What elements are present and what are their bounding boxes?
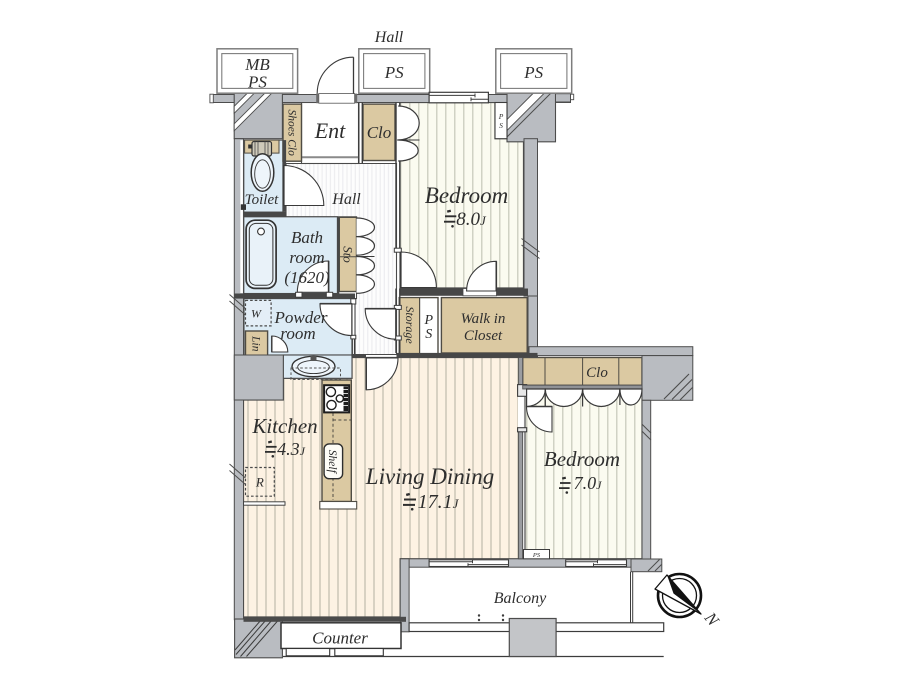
svg-text:8.0J: 8.0J — [456, 209, 487, 230]
svg-text:Living Dining: Living Dining — [365, 464, 494, 489]
svg-text:Shelf: Shelf — [326, 450, 338, 475]
svg-text:Closet: Closet — [464, 328, 503, 344]
svg-text:MB: MB — [244, 55, 270, 74]
svg-text:Bedroom: Bedroom — [425, 183, 508, 208]
svg-text:(1620): (1620) — [284, 268, 330, 287]
svg-text:S: S — [499, 121, 503, 130]
svg-text:W: W — [251, 307, 262, 321]
svg-text:room: room — [280, 324, 315, 343]
svg-text:Toilet: Toilet — [245, 192, 279, 208]
svg-text:N: N — [700, 608, 724, 631]
svg-text:Sto: Sto — [341, 246, 356, 263]
svg-text:P: P — [424, 313, 434, 328]
svg-text:Bath: Bath — [291, 228, 323, 247]
svg-text:PS: PS — [384, 63, 404, 82]
svg-text:room: room — [289, 248, 324, 267]
svg-text:PS: PS — [247, 73, 267, 92]
svg-text:Bedroom: Bedroom — [544, 447, 620, 471]
svg-text:Kitchen: Kitchen — [251, 414, 317, 438]
svg-text:Hall: Hall — [331, 191, 361, 208]
svg-text:P: P — [498, 112, 504, 121]
svg-text:Hall: Hall — [374, 29, 404, 46]
svg-text:Lin: Lin — [250, 335, 262, 352]
svg-text:Clo: Clo — [586, 365, 608, 381]
svg-text:PS: PS — [532, 552, 541, 559]
svg-text:PS: PS — [523, 63, 543, 82]
svg-text:R: R — [255, 475, 264, 490]
svg-text:Counter: Counter — [312, 629, 368, 648]
svg-text:Clo: Clo — [367, 123, 392, 142]
svg-text:Walk in: Walk in — [461, 311, 506, 327]
svg-text:Balcony: Balcony — [494, 590, 547, 607]
svg-text:Storage: Storage — [403, 306, 417, 344]
svg-text:Shoes Clo: Shoes Clo — [285, 110, 297, 157]
svg-text:S: S — [425, 327, 432, 342]
svg-text:Ent: Ent — [314, 118, 346, 143]
